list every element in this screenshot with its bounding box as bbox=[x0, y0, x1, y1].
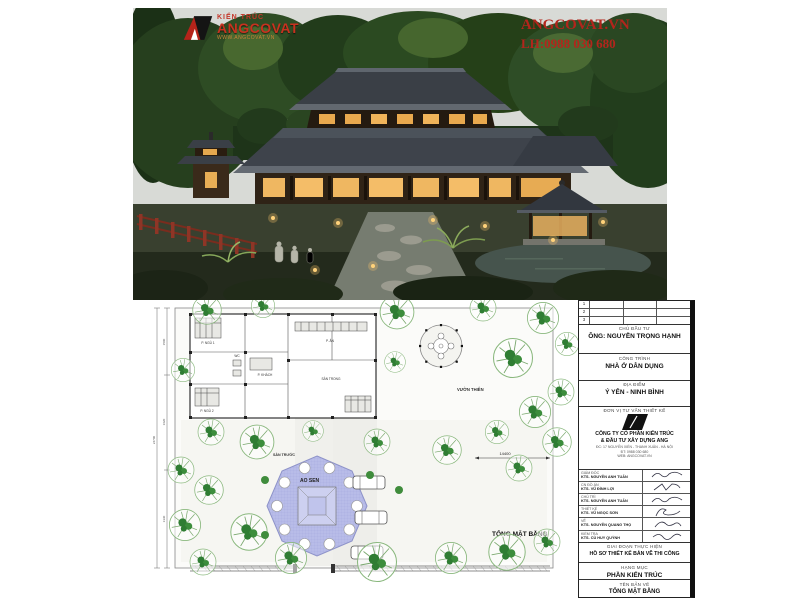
sheet-section: TÊN BẢN VẼ TỔNG MẶT BẰNG bbox=[579, 580, 690, 597]
brand-logo-sub-text: WWW.ANGCOVAT.VN bbox=[217, 36, 299, 41]
room-label: P. NGỦ 2 bbox=[200, 408, 213, 413]
signature-row: CN ĐỒ ÁN KTS. VŨ ĐÌNH LỢI bbox=[579, 482, 690, 494]
signature-name: KTS. VŨ NGỌC SƠN bbox=[581, 511, 640, 515]
exterior-render: KIẾN TRÚC ANGCOVAT WWW.ANGCOVAT.VN ANGCO… bbox=[133, 8, 667, 300]
room-label: P. KHÁCH bbox=[258, 373, 273, 377]
dimension-right-value: 14400 bbox=[499, 451, 511, 456]
revision-cell bbox=[657, 317, 690, 324]
site-plan: P. NGỦ 1 WC P. KHÁCH P. ĂN P. NGỦ 2 SÂN … bbox=[145, 300, 578, 598]
signature-scribble bbox=[650, 470, 684, 480]
signature-scribble bbox=[650, 531, 684, 541]
revision-table: 1 2 3 bbox=[579, 301, 690, 325]
signature-scribble bbox=[650, 495, 684, 505]
revision-cell bbox=[657, 309, 690, 316]
investor-name: ÔNG: NGUYỄN TRỌNG HẠNH bbox=[579, 333, 690, 340]
contact-overlay: ANGCOVAT.VN LH:0988 030 680 bbox=[521, 16, 630, 52]
dim-left-3: 1330 bbox=[162, 515, 166, 522]
design-firm-section: ĐƠN VỊ TƯ VẤN THIẾT KẾ CÔNG TY CỔ PHẦN K… bbox=[579, 407, 690, 470]
location-label: ĐỊA ĐIỂM bbox=[579, 381, 690, 388]
revision-row: 3 bbox=[579, 317, 690, 324]
stage-label: GIAI ĐOẠN THỰC HIỆN bbox=[579, 543, 690, 550]
revision-cell bbox=[590, 301, 624, 308]
stage-section: GIAI ĐOẠN THỰC HIỆN HỒ SƠ THIẾT KẾ BẢN V… bbox=[579, 543, 690, 564]
revision-number: 1 bbox=[579, 301, 590, 308]
signature-name: KTS. NGUYỄN ANH TUẤN bbox=[581, 475, 640, 479]
sheet-label: TÊN BẢN VẼ bbox=[579, 580, 690, 587]
signature-scribble bbox=[650, 507, 684, 517]
location-name: Ý YÊN - NINH BÌNH bbox=[579, 389, 690, 396]
signature-scribble bbox=[650, 519, 684, 529]
firm-name-line2: & ĐẦU TƯ XÂY DỰNG ANG bbox=[601, 438, 668, 445]
signature-row: CHỦ TRÌ KTS. NGUYỄN ANH TUẤN bbox=[579, 494, 690, 506]
site-plan-drawing: P. NGỦ 1 WC P. KHÁCH P. ĂN P. NGỦ 2 SÂN … bbox=[145, 300, 578, 598]
contact-phone: LH:0988 030 680 bbox=[521, 36, 630, 53]
front-yard-label: SÂN TRƯỚC bbox=[273, 452, 295, 457]
signature-scribble bbox=[650, 482, 684, 492]
brand-logo-mark bbox=[183, 14, 213, 42]
revision-cell bbox=[624, 301, 658, 308]
room-label: P. ĂN bbox=[326, 339, 335, 343]
signature-row: KIỂM TRA KTS. CÙ HUY QUỲNH bbox=[579, 531, 690, 542]
category-label: HẠNG MỤC bbox=[579, 563, 690, 570]
project-section: CÔNG TRÌNH NHÀ Ở DÂN DỤNG bbox=[579, 354, 690, 381]
project-name: NHÀ Ở DÂN DỤNG bbox=[579, 363, 690, 370]
sheet-name: TỔNG MẶT BẰNG bbox=[579, 589, 690, 595]
gate-post bbox=[331, 564, 335, 573]
location-section: ĐỊA ĐIỂM Ý YÊN - NINH BÌNH bbox=[579, 381, 690, 407]
dim-left-2: 1620 bbox=[162, 418, 166, 425]
investor-label: CHỦ ĐẦU TƯ bbox=[579, 325, 690, 332]
signature-row: VẼ KTS. NGUYỄN QUANG THỌ bbox=[579, 518, 690, 530]
project-label: CÔNG TRÌNH bbox=[579, 354, 690, 361]
signature-name: KTS. NGUYỄN ANH TUẤN bbox=[581, 499, 640, 503]
contact-website: ANGCOVAT.VN bbox=[521, 16, 630, 36]
zen-garden-label: VƯỜN THIÊN bbox=[457, 387, 484, 392]
brand-logo: KIẾN TRÚC ANGCOVAT WWW.ANGCOVAT.VN bbox=[183, 14, 299, 42]
revision-number: 2 bbox=[579, 309, 590, 316]
signature-name: KTS. NGUYỄN QUANG THỌ bbox=[581, 523, 640, 527]
category-section: HẠNG MỤC PHẦN KIẾN TRÚC bbox=[579, 563, 690, 580]
signature-name: KTS. VŨ ĐÌNH LỢI bbox=[581, 487, 640, 491]
zen-gazebo bbox=[419, 324, 463, 368]
lotus-pond: AO SEN bbox=[267, 456, 367, 556]
house-floorplan: P. NGỦ 1 WC P. KHÁCH P. ĂN P. NGỦ 2 SÂN … bbox=[189, 313, 377, 419]
signature-name: KTS. CÙ HUY QUỲNH bbox=[581, 536, 640, 540]
firm-address: ĐC: 17 NGUYỄN XIỂN - THANH XUÂN - HÀ NỘI bbox=[596, 445, 673, 450]
revision-cell bbox=[590, 317, 624, 324]
revision-row: 1 bbox=[579, 301, 690, 309]
dim-left-1: 1500 bbox=[162, 338, 166, 345]
revision-row: 2 bbox=[579, 309, 690, 317]
pond-label: AO SEN bbox=[300, 478, 320, 484]
room-label: P. NGỦ 1 bbox=[201, 340, 214, 345]
firm-website: WEB: ANGCOVAT.VN bbox=[596, 454, 673, 459]
stage-value: HỒ SƠ THIẾT KẾ BẢN VẼ THI CÔNG bbox=[579, 551, 690, 557]
signature-row: THIẾT KẾ KTS. VŨ NGỌC SƠN bbox=[579, 506, 690, 518]
revision-number: 3 bbox=[579, 317, 590, 324]
room-label: WC bbox=[234, 354, 240, 358]
title-block: 1 2 3 CHỦ ĐẦU TƯ ÔNG: NGUYỄN TRỌNG HẠNH … bbox=[578, 300, 695, 598]
signature-row: GIÁM ĐỐC KTS. NGUYỄN ANH TUẤN bbox=[579, 470, 690, 482]
revision-cell bbox=[624, 309, 658, 316]
firm-logo bbox=[620, 413, 650, 431]
revision-cell bbox=[590, 309, 624, 316]
revision-cell bbox=[624, 317, 658, 324]
category-value: PHẦN KIẾN TRÚC bbox=[579, 572, 690, 579]
revision-cell bbox=[657, 301, 690, 308]
investor-section: CHỦ ĐẦU TƯ ÔNG: NGUYỄN TRỌNG HẠNH bbox=[579, 325, 690, 355]
signature-section: GIÁM ĐỐC KTS. NGUYỄN ANH TUẤN CN ĐỒ ÁN K… bbox=[579, 470, 690, 543]
dim-left-total: 24700 bbox=[152, 435, 156, 444]
room-label: SÂN TRONG bbox=[322, 377, 341, 381]
brand-logo-main-text: ANGCOVAT bbox=[217, 21, 299, 36]
